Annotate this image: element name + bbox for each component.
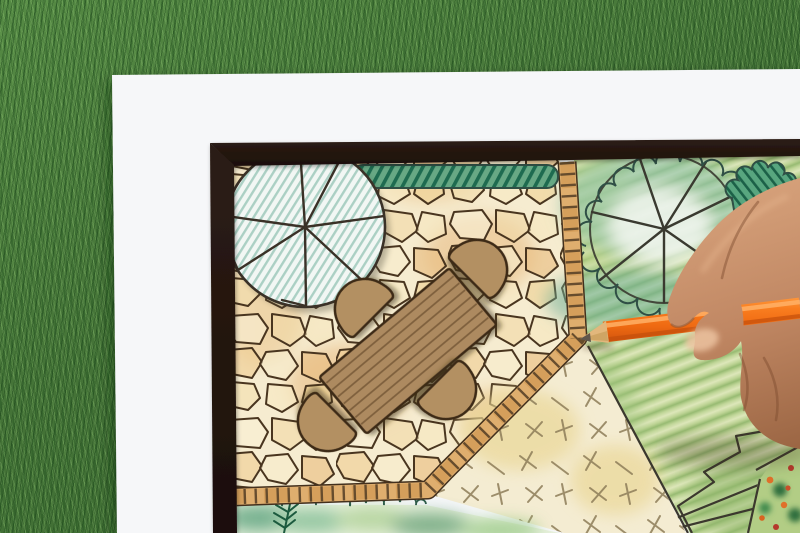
pencil-tip-shadow: [581, 343, 615, 351]
hedge-row: [352, 165, 558, 188]
garden-plan-illustration: [0, 0, 800, 533]
photo-scene: [0, 0, 800, 533]
